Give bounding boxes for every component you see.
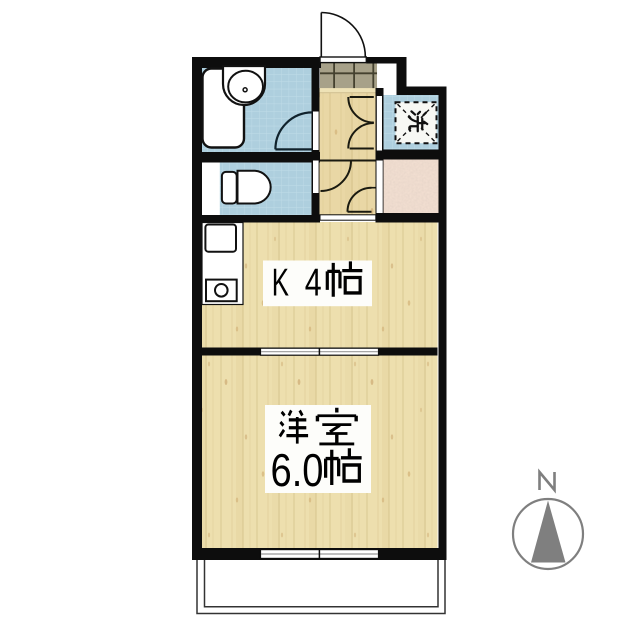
svg-text:4: 4	[305, 262, 322, 305]
svg-text:K: K	[272, 262, 289, 305]
svg-text:6.0: 6.0	[271, 444, 324, 496]
